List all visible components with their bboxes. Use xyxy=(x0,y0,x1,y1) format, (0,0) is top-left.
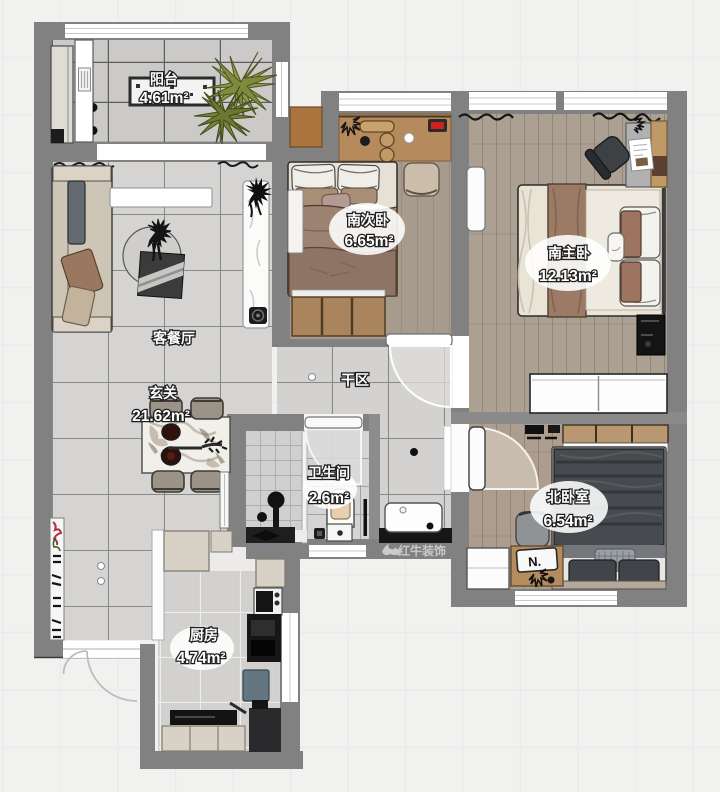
svg-text:厨房: 厨房 xyxy=(190,627,218,643)
svg-text:阳台: 阳台 xyxy=(150,71,178,87)
svg-text:6.65m²: 6.65m² xyxy=(344,233,393,250)
svg-text:客餐厅: 客餐厅 xyxy=(152,330,195,346)
svg-text:南次卧: 南次卧 xyxy=(347,212,389,228)
svg-text:4.74m²: 4.74m² xyxy=(176,650,225,667)
svg-text:6.54m²: 6.54m² xyxy=(543,513,592,530)
svg-text:玄关: 玄关 xyxy=(149,385,177,401)
svg-text:干区: 干区 xyxy=(341,372,369,388)
svg-text:2.6m²: 2.6m² xyxy=(309,490,350,507)
svg-text:N.: N. xyxy=(528,554,542,570)
svg-text:21.62m²: 21.62m² xyxy=(132,408,190,425)
svg-text:卫生间: 卫生间 xyxy=(308,465,350,481)
svg-text:4.61m²: 4.61m² xyxy=(139,90,188,107)
svg-text:12.13m²: 12.13m² xyxy=(539,268,597,285)
svg-text:红牛装饰: 红牛装饰 xyxy=(398,543,446,558)
svg-text:南主卧: 南主卧 xyxy=(548,245,590,261)
svg-text:北卧室: 北卧室 xyxy=(547,489,589,505)
